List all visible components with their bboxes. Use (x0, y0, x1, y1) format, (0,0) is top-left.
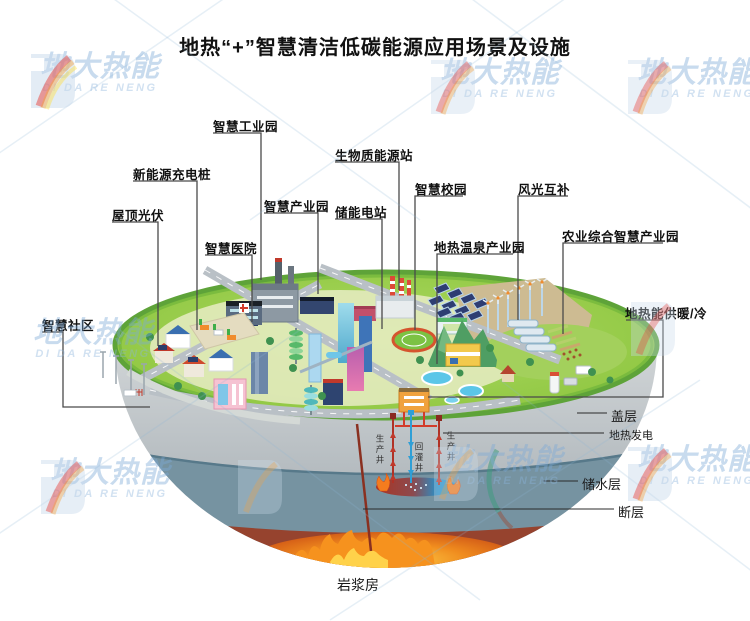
label-smart-campus: 智慧校园 (415, 179, 467, 198)
label-wind-solar-hybrid: 风光互补 (518, 179, 570, 198)
label-smart-industrial-park: 智慧工业园 (213, 116, 278, 135)
page-title: 地热“+”智慧清洁低碳能源应用场景及设施 (0, 31, 750, 60)
label-biomass-station: 生物质能源站 (335, 145, 413, 164)
label-geothermal-power: 地热发电 (609, 427, 653, 443)
label-smart-hospital: 智慧医院 (205, 238, 257, 257)
label-cap-layer: 盖层 (611, 406, 637, 425)
label-fault: 断层 (618, 502, 644, 521)
label-hot-spring-park: 地热温泉产业园 (434, 237, 525, 256)
monorail-train-icon (326, 352, 342, 358)
label-agriculture-park: 农业综合智慧产业园 (562, 226, 679, 245)
label-smart-industry-park: 智慧产业园 (264, 196, 329, 215)
label-smart-community: 智慧社区 (42, 315, 94, 334)
label-rooftop-pv: 屋顶光伏 (112, 205, 164, 224)
label-production-well-right: 生产井 (445, 431, 457, 463)
label-production-well-left: 生产井 (374, 434, 386, 466)
cooling-tower-icon (550, 372, 559, 393)
label-energy-storage: 储能电站 (335, 202, 387, 221)
label-injection-well: 回灌井 (413, 442, 425, 474)
label-magma-chamber: 岩浆房 (337, 575, 379, 595)
infographic-canvas: 地热“+”智慧清洁低碳能源应用场景及设施 智慧工业园 新能源充电桩 屋顶光伏 智… (0, 0, 750, 621)
label-geothermal-heating-cooling: 地热能供暖/冷 (625, 303, 707, 322)
label-ev-charging: 新能源充电桩 (133, 164, 211, 183)
label-aquifer: 储水层 (582, 474, 621, 493)
